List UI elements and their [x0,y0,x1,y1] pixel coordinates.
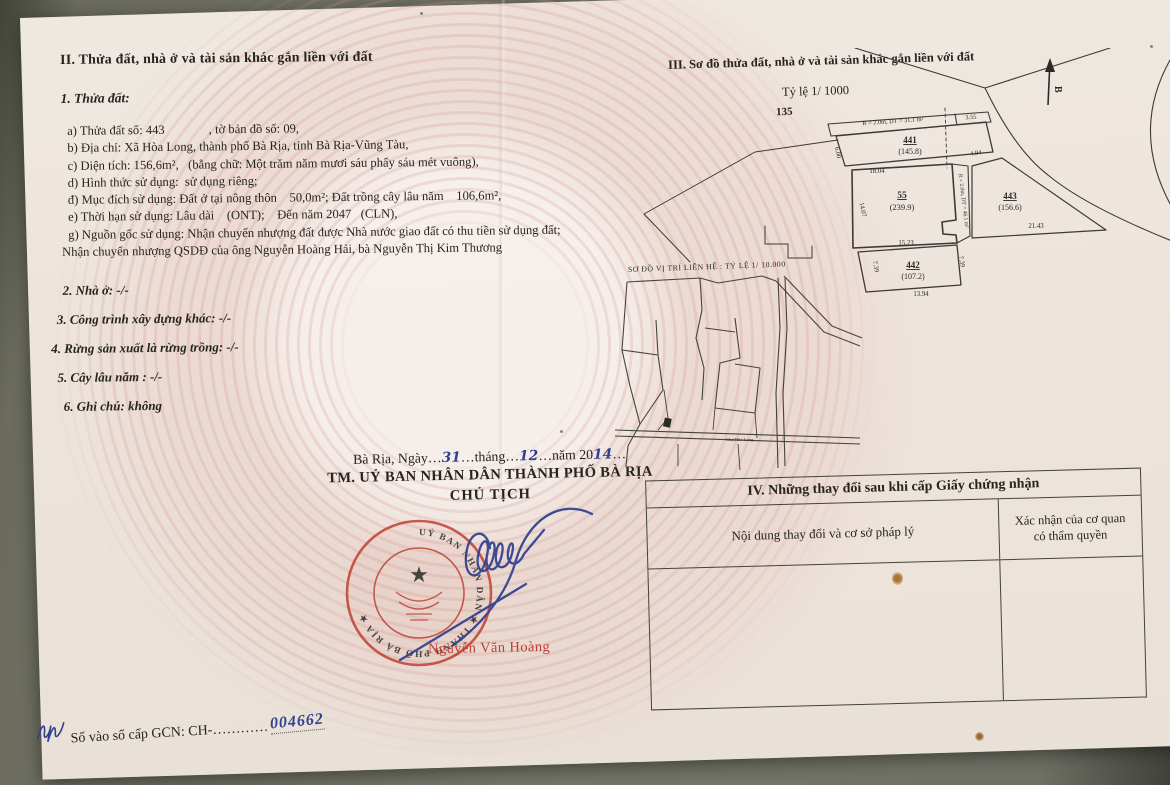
north-arrow-icon: B [1045,58,1063,105]
neighbor-step [765,226,812,258]
dim-7-39-right: 7.39 [957,255,966,268]
paper-speck [1150,45,1153,48]
map-parcel-line [715,318,760,413]
date-year-handwritten: 14 [593,446,613,462]
dim-14-07: 14.07 [858,202,868,218]
map-road-label: Chợ Hòa Long [726,437,754,442]
item-3: 3. Công trình xây dựng khác: -/- [57,306,623,327]
date-print: …tháng… [461,448,520,464]
date-print: Bà Rịa, Ngày… [353,450,442,467]
col-change-content: Nội dung thay đổi và cơ sở pháp lý [647,499,1000,568]
dim-15-23: 15.23 [898,240,914,247]
section-iv-table: IV. Những thay đổi sau khi cấp Giấy chứn… [645,468,1147,711]
date-print: …năm 20 [538,447,593,463]
dim-13-94: 13.94 [913,291,929,298]
neighbor-boundary [644,140,838,262]
dim-6-00: 6.00 [833,146,842,159]
map-parcel-line [696,278,704,400]
plot-442-area: (107.2) [901,272,925,281]
plot-443-id: 443 [1003,191,1017,201]
dim-18-04: 18.04 [869,168,885,175]
date-day-handwritten: 31 [441,450,461,466]
dim-4-94: 4.94 [970,149,983,158]
north-label: B [1052,86,1063,93]
road-edge [855,48,985,88]
plot-441-id: 441 [903,135,917,145]
registry-number-handwritten: 004662 [269,711,325,735]
date-month-handwritten: 12 [519,448,539,464]
signer-name: Nguyễn Văn Hoàng [428,639,550,658]
map-subject-marker [663,417,672,427]
road-curve [985,88,1170,250]
plot-55-area: (239.9) [890,202,915,212]
cell-authority-confirm [1000,557,1146,701]
map-road [776,278,780,468]
paper-stain [892,572,903,585]
col-authority-confirm: Xác nhận của cơ quan có thẩm quyền [998,496,1142,560]
plot-55-id: 55 [897,191,907,201]
registry-dots: ………… [212,720,269,739]
paper-stain [975,732,984,741]
map-road [784,276,862,338]
paper-speck [560,430,563,433]
item-6: 6. Ghi chú: không [64,393,624,414]
plot-442-id: 442 [906,260,920,270]
paper-speck [420,12,423,15]
item-2: 2. Nhà ở: -/- [62,277,622,298]
strip-divider [955,114,957,125]
plot-443-area: (156.6) [998,203,1022,212]
map-road [776,281,860,346]
map-boundary [622,282,640,466]
dim-21-43: 21.43 [1028,223,1044,230]
section-ii-sub: 1. Thửa đất: [60,85,620,107]
dashed-line [945,108,947,168]
map-road [783,278,787,466]
date-print: … [612,446,626,461]
strip-top-label: R = 2.0m, DT = 31.1 m² [862,116,924,127]
section-ii: II. Thửa đất, nhà ở và tài sản khác gắn … [60,47,624,428]
item-4: 4. Rừng sản xuất là rừng trồng: -/- [51,335,623,356]
strip-right-label: R = 2.0m, DT = 46.1 m² [957,174,970,229]
dim-3-55: 3.55 [965,114,976,122]
map-caption: SƠ ĐỒ VỊ TRÍ LIÊN HỆ : TỶ LỆ 1/ 10.000 [628,260,786,274]
dim-7-39-left: 7.39 [871,260,880,273]
handwritten-initial-icon [33,713,69,745]
item-5: 5. Cây lâu năm : -/- [57,364,623,385]
plot-441-area: (145.8) [898,147,922,156]
cell-change-content [648,560,1003,709]
map-boundary [627,276,776,283]
location-map: SƠ ĐỒ VỊ TRÍ LIÊN HỆ : TỶ LỆ 1/ 10.000 C… [598,260,866,474]
road-curve [1150,60,1170,245]
